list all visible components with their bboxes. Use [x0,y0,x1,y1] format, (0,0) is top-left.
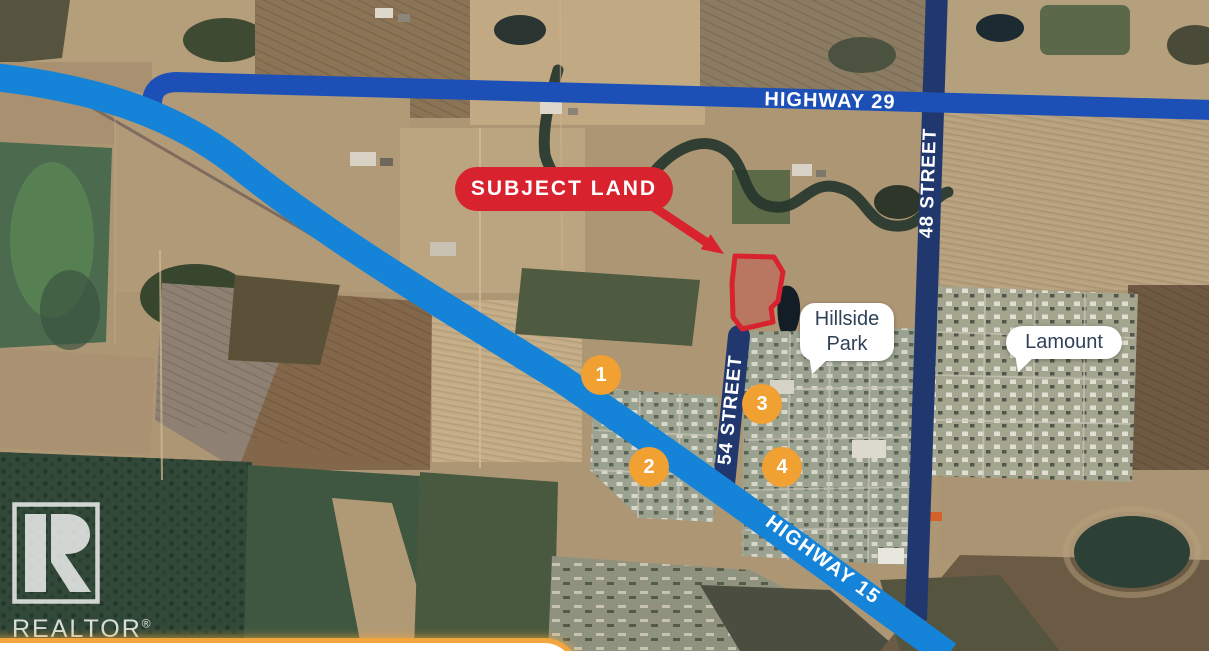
place-bubble-text: Lamount [1025,331,1103,354]
realtor-block-r-icon [12,502,100,604]
bubble-tail [1013,354,1035,374]
map-marker-4: 4 [762,447,802,487]
place-bubble-text: Hillside Park [800,307,894,357]
place-bubble-lamount: Lamount [1006,326,1122,359]
bubble-tail [807,356,829,376]
aerial-map: HIGHWAY 29 48 STREET 54 STREET HIGHWAY 1… [0,0,1209,651]
registered-mark: ® [142,617,153,631]
map-marker-2: 2 [629,447,669,487]
map-marker-3: 3 [742,384,782,424]
bottom-callout-box [0,638,580,651]
realtor-logo: REALTOR® [12,502,153,644]
place-bubble-hillside-park: Hillside Park [800,303,894,361]
subject-pointer-arrow [652,206,724,254]
subject-land-badge: SUBJECT LAND [455,167,673,211]
map-marker-1: 1 [581,355,621,395]
